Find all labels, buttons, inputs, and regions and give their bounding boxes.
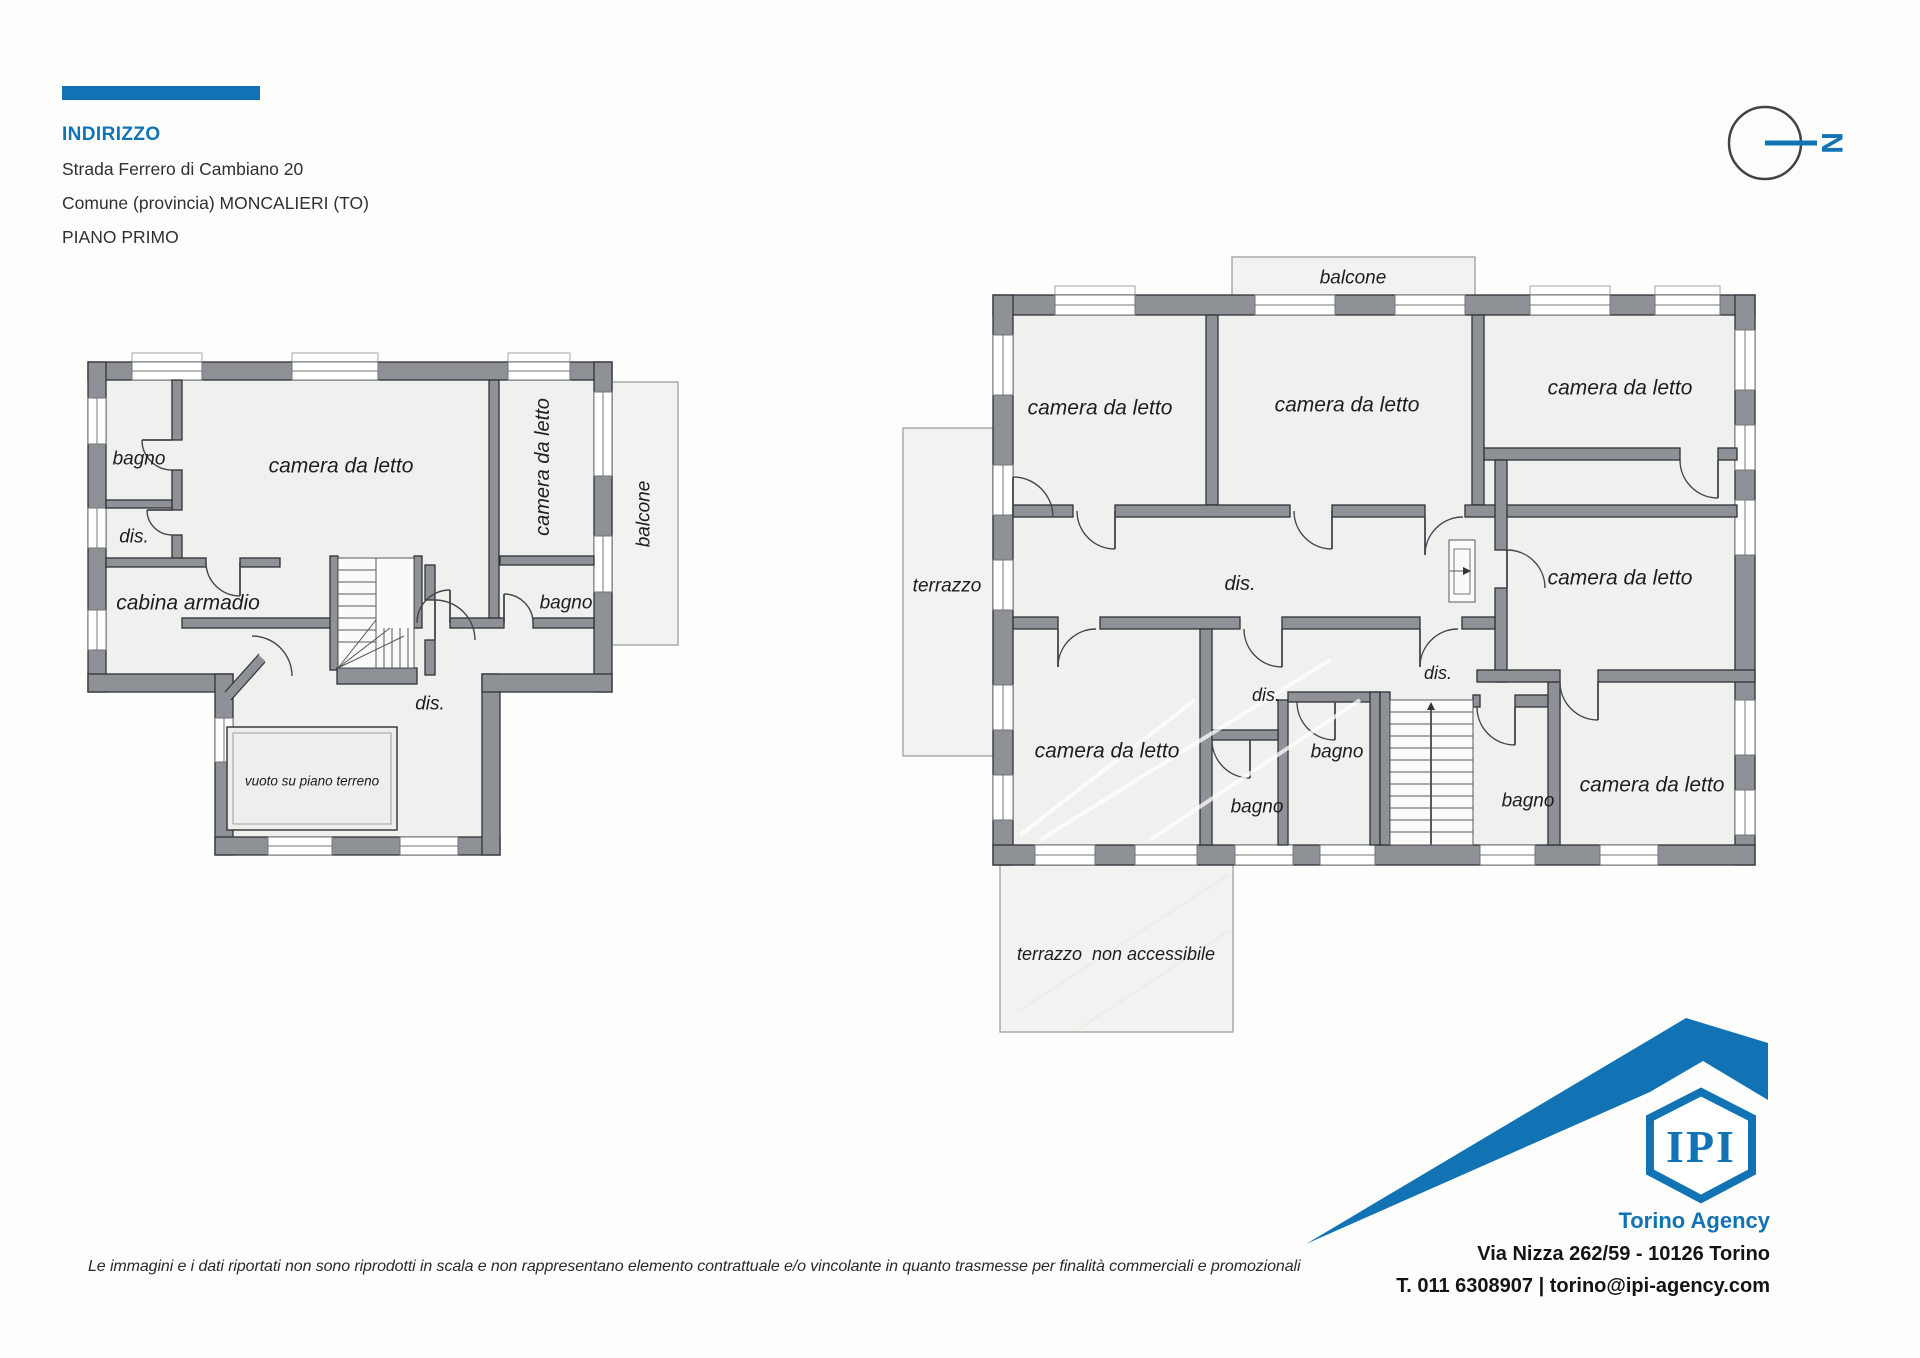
- room-label-dis: dis.: [1252, 686, 1280, 704]
- room-label-bagno: bagno: [113, 450, 166, 469]
- room-label-balcone: balcone: [635, 481, 654, 548]
- room-label-terrazzo-non-accessibile: terrazzo non accessibile: [1017, 945, 1215, 963]
- room-label-camera-da-letto: camera da letto: [1580, 775, 1725, 796]
- logo-text: IPI: [1666, 1121, 1736, 1172]
- header-accent-bar: [62, 86, 260, 100]
- room-label-dis: dis.: [415, 695, 445, 714]
- agency-name: Torino Agency: [1396, 1208, 1770, 1234]
- header-title: INDIRIZZO: [62, 124, 369, 146]
- agency-address: Via Nizza 262/59 - 10126 Torino: [1396, 1243, 1770, 1266]
- header-floor: PIANO PRIMO: [62, 227, 369, 248]
- room-label-camera-da-letto: camera da letto: [1548, 568, 1693, 589]
- right-floor-plan: [903, 257, 1755, 1032]
- room-label-terrazzo: terrazzo: [913, 577, 982, 596]
- address-header: INDIRIZZO Strada Ferrero di Cambiano 20 …: [62, 86, 369, 248]
- agency-info: Torino Agency Via Nizza 262/59 - 10126 T…: [1396, 1208, 1770, 1298]
- room-label-camera-da-letto: camera da letto: [269, 456, 414, 477]
- header-municipality: Comune (provincia) MONCALIERI (TO): [62, 193, 369, 214]
- room-label-dis: dis.: [1224, 574, 1255, 594]
- compass: N: [1729, 107, 1848, 179]
- room-label-camera-da-letto: camera da letto: [1275, 395, 1420, 416]
- room-label-camera-da-letto: camera da letto: [1035, 741, 1180, 762]
- room-label-balcone: balcone: [1320, 269, 1387, 288]
- page: { "header": { "title": "INDIRIZZO", "add…: [0, 0, 1920, 1358]
- room-label-vuoto: vuoto su piano terreno: [245, 774, 379, 788]
- right-plan-staircase: [1390, 700, 1473, 845]
- right-plan-lift: [1449, 540, 1475, 602]
- room-label-bagno: bagno: [1502, 792, 1555, 811]
- room-label-camera-da-letto: camera da letto: [533, 398, 553, 536]
- room-label-bagno: bagno: [540, 594, 593, 613]
- left-plan-staircase: [338, 558, 414, 668]
- room-label-cabina-armadio: cabina armadio: [116, 593, 260, 614]
- room-label-camera-da-letto: camera da letto: [1028, 398, 1173, 419]
- room-label-bagno: bagno: [1231, 798, 1284, 817]
- room-label-bagno: bagno: [1311, 743, 1364, 762]
- room-label-dis: dis.: [119, 528, 149, 547]
- room-label-dis: dis.: [1424, 664, 1452, 682]
- header-street: Strada Ferrero di Cambiano 20: [62, 159, 369, 180]
- disclaimer-text: Le immagini e i dati riportati non sono …: [88, 1258, 1300, 1276]
- room-label-camera-da-letto: camera da letto: [1548, 378, 1693, 399]
- compass-north-label: N: [1815, 132, 1848, 154]
- agency-contacts: T. 011 6308907 | torino@ipi-agency.com: [1396, 1275, 1770, 1298]
